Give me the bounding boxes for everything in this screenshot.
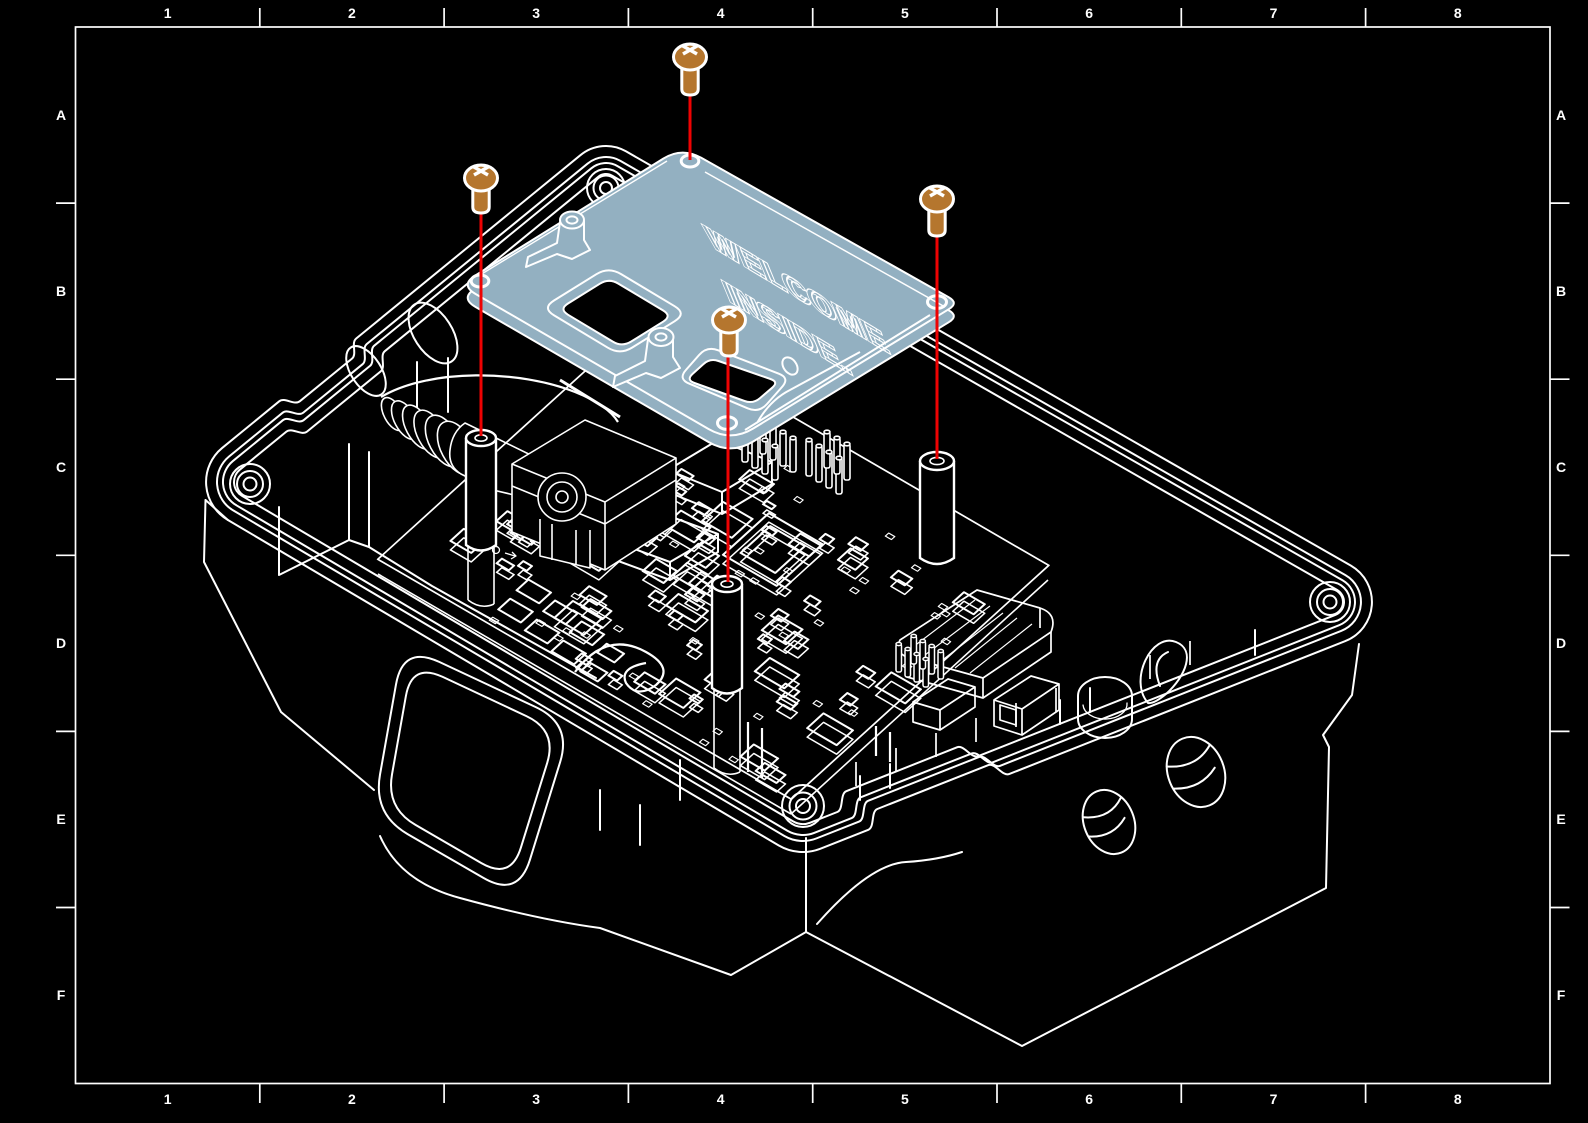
svg-text:7: 7 bbox=[1270, 1091, 1278, 1107]
svg-text:E: E bbox=[56, 811, 65, 827]
svg-text:1: 1 bbox=[164, 1091, 172, 1107]
svg-text:6: 6 bbox=[1085, 5, 1093, 21]
svg-text:D: D bbox=[1556, 635, 1566, 651]
svg-text:E: E bbox=[1556, 811, 1565, 827]
svg-text:2: 2 bbox=[348, 5, 356, 21]
svg-text:8: 8 bbox=[1454, 5, 1462, 21]
svg-text:3: 3 bbox=[532, 5, 540, 21]
svg-text:F: F bbox=[57, 987, 66, 1003]
svg-text:2: 2 bbox=[348, 1091, 356, 1107]
svg-text:D: D bbox=[56, 635, 66, 651]
svg-text:5: 5 bbox=[901, 1091, 909, 1107]
svg-text:1: 1 bbox=[164, 5, 172, 21]
svg-text:B: B bbox=[1556, 283, 1566, 299]
svg-text:4: 4 bbox=[717, 1091, 725, 1107]
svg-text:B: B bbox=[56, 283, 66, 299]
svg-text:A: A bbox=[56, 107, 66, 123]
svg-text:8: 8 bbox=[1454, 1091, 1462, 1107]
svg-text:6: 6 bbox=[1085, 1091, 1093, 1107]
svg-text:C: C bbox=[56, 459, 66, 475]
svg-text:5: 5 bbox=[901, 5, 909, 21]
svg-text:F: F bbox=[1557, 987, 1566, 1003]
svg-text:A: A bbox=[1556, 107, 1566, 123]
svg-text:C: C bbox=[1556, 459, 1566, 475]
svg-text:4: 4 bbox=[717, 5, 725, 21]
svg-text:3: 3 bbox=[532, 1091, 540, 1107]
svg-text:7: 7 bbox=[1270, 5, 1278, 21]
